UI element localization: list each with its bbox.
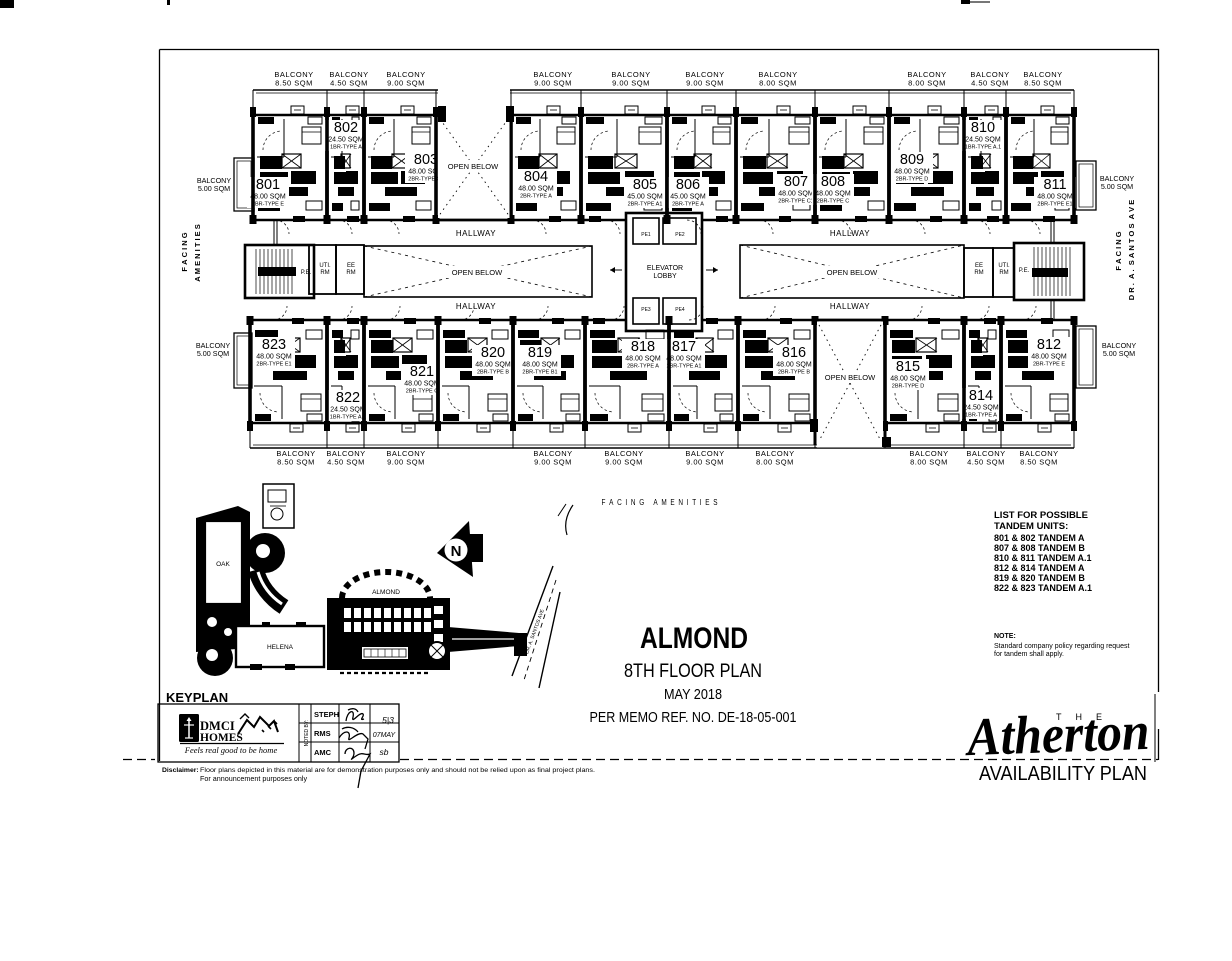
svg-text:5.00 SQM: 5.00 SQM <box>197 349 229 358</box>
svg-text:48.00 SQM: 48.00 SQM <box>625 356 661 363</box>
svg-text:F A C I N G A M E N I T I E: F A C I N G A M E N I T I E S <box>602 498 719 507</box>
svg-text:RMS: RMS <box>314 729 331 738</box>
svg-text:OPEN BELOW: OPEN BELOW <box>448 162 499 171</box>
svg-text:P.E.: P.E. <box>301 270 312 276</box>
svg-text:24.50 SQM: 24.50 SQM <box>963 405 999 412</box>
svg-text:8TH FLOOR PLAN: 8TH FLOOR PLAN <box>624 660 762 682</box>
svg-text:Atherton: Atherton <box>964 701 1151 767</box>
svg-text:48.00 SQM: 48.00 SQM <box>518 186 554 193</box>
svg-text:N: N <box>451 543 462 560</box>
svg-text:NOTE:: NOTE: <box>994 633 1016 640</box>
svg-text:8.50 SQM: 8.50 SQM <box>1020 458 1058 467</box>
svg-text:48.00 SQM: 48.00 SQM <box>778 191 814 198</box>
svg-text:2BR-TYPE A: 2BR-TYPE A <box>627 364 659 370</box>
svg-text:9.00 SQM: 9.00 SQM <box>605 458 643 467</box>
svg-text:48.00 SQM: 48.00 SQM <box>256 354 292 361</box>
svg-text:MAY 2018: MAY 2018 <box>664 686 722 703</box>
svg-text:TANDEM UNITS:: TANDEM UNITS: <box>994 521 1068 532</box>
svg-text:5.00 SQM: 5.00 SQM <box>198 184 230 193</box>
svg-text:PE4: PE4 <box>675 307 685 313</box>
svg-text:2BR-TYPE A: 2BR-TYPE A <box>520 194 552 200</box>
svg-text:805: 805 <box>633 177 657 193</box>
svg-text:820: 820 <box>481 345 505 361</box>
svg-text:2BR-TYPE B1: 2BR-TYPE B1 <box>522 370 557 376</box>
svg-text:45.00 SQM: 45.00 SQM <box>627 194 663 201</box>
svg-text:AMC: AMC <box>314 748 332 757</box>
svg-text:OAK: OAK <box>216 561 230 568</box>
svg-text:A M E N I T I E S: A M E N I T I E S <box>193 224 202 282</box>
svg-text:AVAILABILITY PLAN: AVAILABILITY PLAN <box>979 762 1147 785</box>
svg-text:9.00 SQM: 9.00 SQM <box>534 458 572 467</box>
svg-text:48.00 SQM: 48.00 SQM <box>1037 194 1073 201</box>
svg-text:8.00 SQM: 8.00 SQM <box>759 79 797 88</box>
svg-text:for tandem shall apply.: for tandem shall apply. <box>994 651 1064 658</box>
svg-text:815: 815 <box>896 359 920 375</box>
svg-text:48.00 SQM: 48.00 SQM <box>404 381 440 388</box>
svg-text:8.50 SQM: 8.50 SQM <box>275 79 313 88</box>
svg-text:814: 814 <box>969 388 993 404</box>
svg-text:Feels real good to be home: Feels real good to be home <box>184 745 278 755</box>
svg-text:819 & 820 TANDEM B: 819 & 820 TANDEM B <box>994 573 1085 583</box>
svg-text:PE1: PE1 <box>641 232 651 238</box>
svg-text:DMCI: DMCI <box>200 719 235 733</box>
svg-text:48.00 SQM: 48.00 SQM <box>1031 354 1067 361</box>
svg-text:HALLWAY: HALLWAY <box>456 229 496 238</box>
svg-text:48.00 SQM: 48.00 SQM <box>666 356 702 363</box>
svg-text:48.00 SQM: 48.00 SQM <box>815 191 851 198</box>
svg-text:48.00 SQM: 48.00 SQM <box>890 376 926 383</box>
svg-text:8.50 SQM: 8.50 SQM <box>1024 79 1062 88</box>
svg-text:HELENA: HELENA <box>267 644 294 651</box>
svg-text:808: 808 <box>821 174 845 190</box>
svg-text:5.00 SQM: 5.00 SQM <box>1103 349 1135 358</box>
svg-text:8.00 SQM: 8.00 SQM <box>908 79 946 88</box>
svg-text:OPEN BELOW: OPEN BELOW <box>452 268 503 277</box>
svg-text:9.00 SQM: 9.00 SQM <box>387 458 425 467</box>
svg-text:P.E.: P.E. <box>1019 268 1030 274</box>
svg-text:2BR-TYPE A1: 2BR-TYPE A1 <box>628 202 663 208</box>
svg-text:8.00 SQM: 8.00 SQM <box>910 458 948 467</box>
svg-text:812 & 814 TANDEM A: 812 & 814 TANDEM A <box>994 563 1085 573</box>
svg-text:RM: RM <box>974 270 983 276</box>
svg-text:807: 807 <box>784 174 808 190</box>
svg-text:KEYPLAN: KEYPLAN <box>166 690 228 705</box>
svg-text:819: 819 <box>528 345 552 361</box>
svg-text:822 & 823 TANDEM A.1: 822 & 823 TANDEM A.1 <box>994 583 1092 593</box>
svg-text:F A C I N G: F A C I N G <box>1114 231 1123 270</box>
svg-text:802: 802 <box>334 120 358 136</box>
svg-text:F A C I N G: F A C I N G <box>180 232 189 271</box>
svg-text:817: 817 <box>672 339 696 355</box>
svg-text:9.00 SQM: 9.00 SQM <box>387 79 425 88</box>
svg-text:24.50 SQM: 24.50 SQM <box>330 407 366 414</box>
svg-text:HALLWAY: HALLWAY <box>830 229 870 238</box>
svg-text:OPEN BELOW: OPEN BELOW <box>825 373 876 382</box>
svg-text:2BR-TYPE E1: 2BR-TYPE E1 <box>1037 202 1072 208</box>
svg-text:48.00 SQM: 48.00 SQM <box>522 362 558 369</box>
svg-text:9.00 SQM: 9.00 SQM <box>534 79 572 88</box>
svg-text:9.00 SQM: 9.00 SQM <box>686 458 724 467</box>
svg-text:LIST FOR POSSIBLE: LIST FOR POSSIBLE <box>994 510 1088 521</box>
svg-text:8.00 SQM: 8.00 SQM <box>756 458 794 467</box>
svg-text:PER MEMO REF. NO. DE-18-05-001: PER MEMO REF. NO. DE-18-05-001 <box>590 710 797 726</box>
svg-text:NOTED BY:: NOTED BY: <box>304 720 310 747</box>
svg-text:2BR-TYPE E: 2BR-TYPE E <box>1033 362 1065 368</box>
svg-text:RM: RM <box>346 270 355 276</box>
svg-text:48.00 SQM: 48.00 SQM <box>250 194 286 201</box>
svg-text:PE3: PE3 <box>641 307 651 313</box>
svg-text:811: 811 <box>1043 177 1066 193</box>
svg-text:810 & 811 TANDEM A.1: 810 & 811 TANDEM A.1 <box>994 553 1092 563</box>
svg-text:OPEN BELOW: OPEN BELOW <box>827 268 878 277</box>
svg-text:STEPH: STEPH <box>314 710 339 719</box>
svg-text:2BR-TYPE C: 2BR-TYPE C <box>406 389 438 395</box>
svg-text:2BR-TYPE D: 2BR-TYPE D <box>892 384 924 390</box>
svg-text:Disclaimer:: Disclaimer: <box>162 767 199 774</box>
svg-text:5.00 SQM: 5.00 SQM <box>1101 182 1133 191</box>
svg-text:LOBBY: LOBBY <box>653 273 677 280</box>
svg-text:818: 818 <box>631 339 655 355</box>
svg-text:4.50 SQM: 4.50 SQM <box>327 458 365 467</box>
svg-text:D R . A . S A N T O S A V E: D R . A . S A N T O S A V E <box>1127 200 1136 300</box>
svg-text:801: 801 <box>256 177 280 193</box>
svg-text:804: 804 <box>524 169 548 185</box>
svg-text:2BR-TYPE B: 2BR-TYPE B <box>778 370 810 376</box>
svg-text:1BR-TYPE A.1: 1BR-TYPE A.1 <box>330 415 366 421</box>
svg-text:810: 810 <box>971 120 995 136</box>
svg-text:4.50 SQM: 4.50 SQM <box>971 79 1009 88</box>
svg-text:2BR-TYPE E: 2BR-TYPE E <box>252 202 284 208</box>
svg-text:24.50 SQM: 24.50 SQM <box>965 137 1001 144</box>
svg-text:For announcement purposes only: For announcement purposes only <box>200 774 307 783</box>
svg-text:24.50 SQM: 24.50 SQM <box>328 137 364 144</box>
svg-text:sb: sb <box>380 747 389 757</box>
svg-text:8.50 SQM: 8.50 SQM <box>277 458 315 467</box>
svg-text:2BR-TYPE E1: 2BR-TYPE E1 <box>256 362 291 368</box>
svg-text:9.00 SQM: 9.00 SQM <box>686 79 724 88</box>
svg-text:4.50 SQM: 4.50 SQM <box>330 79 368 88</box>
svg-text:HALLWAY: HALLWAY <box>830 302 870 311</box>
svg-text:HALLWAY: HALLWAY <box>456 302 496 311</box>
svg-text:2BR-TYPE C1: 2BR-TYPE C1 <box>778 199 813 205</box>
svg-text:2BR-TYPE A1: 2BR-TYPE A1 <box>667 364 702 370</box>
svg-text:07MAY: 07MAY <box>373 732 397 739</box>
svg-text:ALMOND: ALMOND <box>640 622 748 655</box>
svg-text:9.00 SQM: 9.00 SQM <box>612 79 650 88</box>
svg-text:816: 816 <box>782 345 806 361</box>
svg-text:807 & 808 TANDEM B: 807 & 808 TANDEM B <box>994 543 1085 553</box>
svg-text:ELEVATOR: ELEVATOR <box>647 265 683 272</box>
svg-text:Standard company policy regard: Standard company policy regarding reques… <box>994 643 1129 650</box>
svg-text:1BR-TYPE A: 1BR-TYPE A <box>965 413 997 419</box>
svg-text:823: 823 <box>262 337 286 353</box>
svg-text:48.00 SQM: 48.00 SQM <box>475 362 511 369</box>
svg-text:822: 822 <box>336 390 360 406</box>
svg-text:45.00 SQM: 45.00 SQM <box>670 194 706 201</box>
svg-text:821: 821 <box>410 364 434 380</box>
svg-text:HOMES: HOMES <box>200 732 243 744</box>
svg-text:806: 806 <box>676 177 700 193</box>
svg-text:Floor plans depicted in this m: Floor plans depicted in this material ar… <box>200 767 595 774</box>
svg-text:1BR-TYPE A: 1BR-TYPE A <box>330 145 362 151</box>
svg-text:RM: RM <box>320 270 329 276</box>
svg-text:48.00 SQM: 48.00 SQM <box>776 362 812 369</box>
svg-text:PE2: PE2 <box>675 232 685 238</box>
svg-text:809: 809 <box>900 152 924 168</box>
svg-text:UTI.: UTI. <box>319 263 331 269</box>
svg-text:2BR-TYPE C: 2BR-TYPE C <box>817 199 849 205</box>
svg-text:UTI.: UTI. <box>998 263 1010 269</box>
svg-text:4.50 SQM: 4.50 SQM <box>967 458 1005 467</box>
svg-text:2BR-TYPE D: 2BR-TYPE D <box>896 177 928 183</box>
svg-text:48.00 SQM: 48.00 SQM <box>894 169 930 176</box>
svg-text:ALMOND: ALMOND <box>372 589 400 596</box>
svg-text:812: 812 <box>1037 337 1061 353</box>
svg-text:2BR-TYPE A: 2BR-TYPE A <box>672 202 704 208</box>
svg-text:1BR-TYPE A.1: 1BR-TYPE A.1 <box>965 145 1001 151</box>
svg-text:5|3: 5|3 <box>382 715 394 725</box>
svg-text:2BR-TYPE B: 2BR-TYPE B <box>477 370 509 376</box>
svg-text:RM: RM <box>999 270 1008 276</box>
svg-text:801 & 802 TANDEM A: 801 & 802 TANDEM A <box>994 533 1085 543</box>
svg-text:EE: EE <box>975 263 983 269</box>
svg-text:EE: EE <box>347 263 355 269</box>
